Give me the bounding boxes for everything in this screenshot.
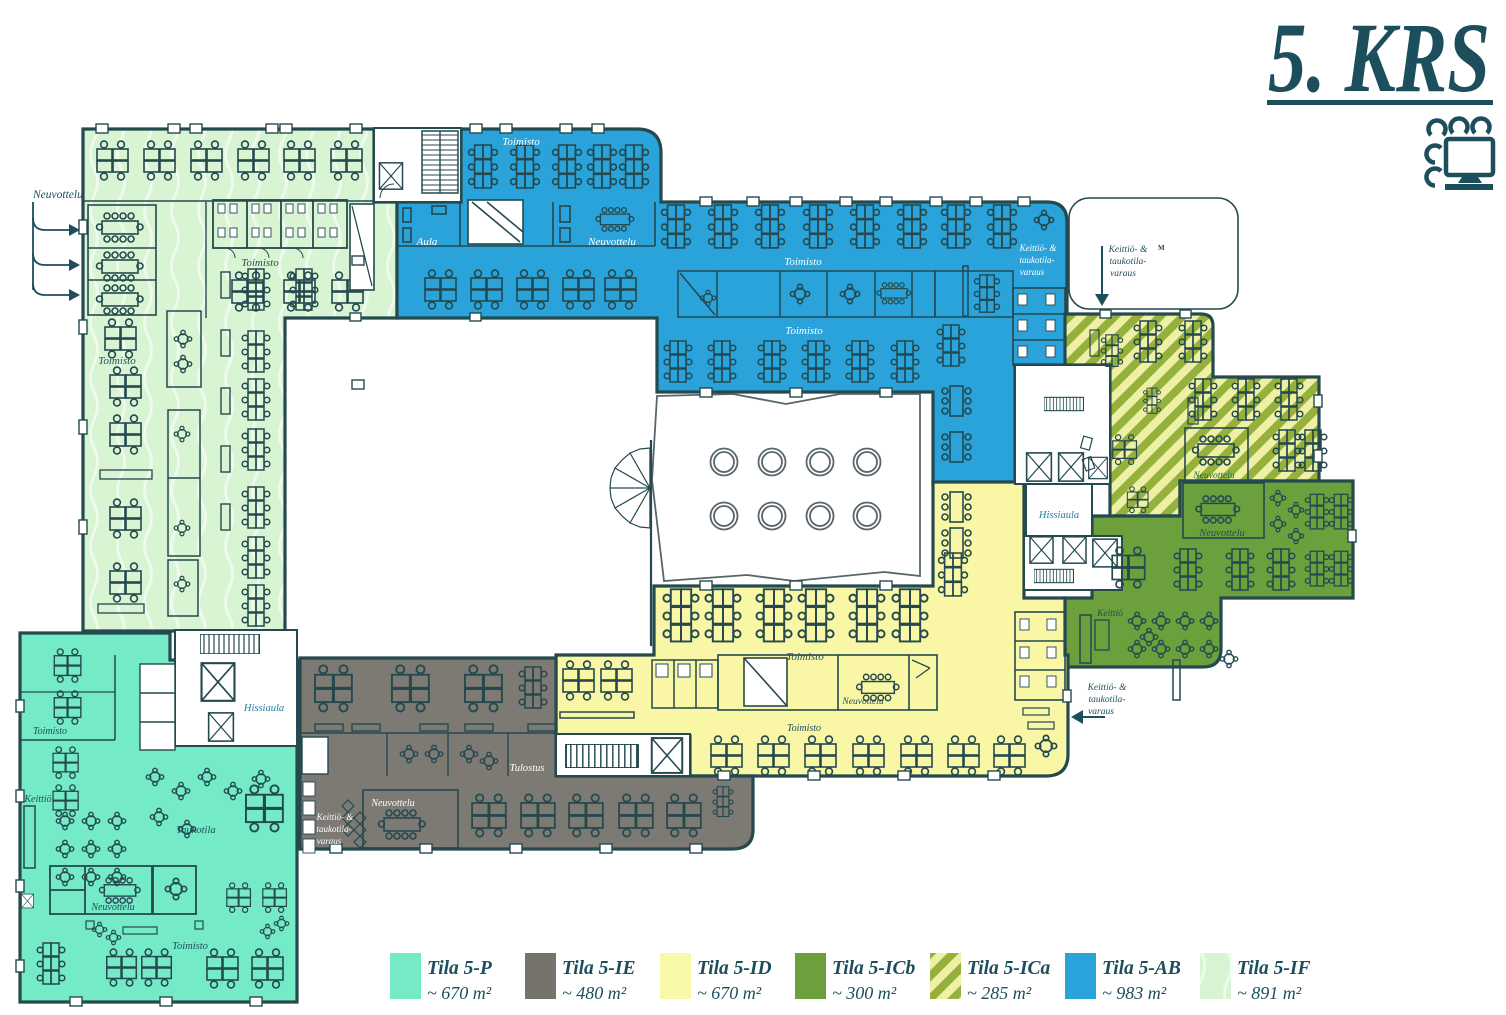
svg-text:~ 300 m²: ~ 300 m² xyxy=(832,983,897,1003)
svg-text:~ 480 m²: ~ 480 m² xyxy=(562,983,627,1003)
svg-text:Neuvottelu: Neuvottelu xyxy=(32,189,83,201)
svg-text:taukotila-: taukotila- xyxy=(1089,695,1126,705)
svg-text:~ 983 m²: ~ 983 m² xyxy=(1102,983,1167,1003)
svg-text:varaus: varaus xyxy=(1110,269,1136,279)
svg-text:Keittiö: Keittiö xyxy=(1096,609,1123,619)
svg-text:5. KRS: 5. KRS xyxy=(1268,2,1490,113)
svg-text:Hissiaula: Hissiaula xyxy=(1038,510,1079,521)
svg-text:taukotila-: taukotila- xyxy=(1020,255,1055,265)
svg-text:M: M xyxy=(1158,244,1165,252)
svg-text:Keittiö- &: Keittiö- & xyxy=(316,812,354,822)
svg-text:varaus: varaus xyxy=(1088,707,1114,717)
svg-text:~ 670 m²: ~ 670 m² xyxy=(427,983,492,1003)
svg-text:taukotila-: taukotila- xyxy=(1110,257,1147,267)
svg-text:Toimisto: Toimisto xyxy=(241,257,279,269)
svg-text:Neuvottelu: Neuvottelu xyxy=(587,236,636,248)
svg-text:Neuvottelu: Neuvottelu xyxy=(841,697,883,707)
svg-text:Tila 5-ICb: Tila 5-ICb xyxy=(832,958,915,979)
svg-text:Taukotila: Taukotila xyxy=(176,825,215,836)
svg-text:Keittiö- &: Keittiö- & xyxy=(1087,683,1127,693)
svg-text:Keittiö- &: Keittiö- & xyxy=(1108,245,1148,255)
svg-text:Toimisto: Toimisto xyxy=(98,355,136,367)
svg-text:Neuvottelu: Neuvottelu xyxy=(1192,471,1234,481)
svg-text:Tila 5-ICa: Tila 5-ICa xyxy=(967,958,1050,979)
svg-text:Neuvottelu: Neuvottelu xyxy=(370,798,414,809)
svg-text:Neuvottelu: Neuvottelu xyxy=(90,902,134,913)
svg-text:Toimisto: Toimisto xyxy=(502,136,540,148)
svg-text:Toimisto: Toimisto xyxy=(786,651,824,663)
svg-text:Toimisto: Toimisto xyxy=(172,941,208,952)
svg-text:varaus: varaus xyxy=(1020,267,1045,277)
svg-text:Keittiö: Keittiö xyxy=(23,794,51,805)
svg-text:Tila 5-IE: Tila 5-IE xyxy=(562,958,636,979)
svg-text:Neuvottelu: Neuvottelu xyxy=(1198,528,1245,539)
svg-text:varaus: varaus xyxy=(317,836,342,846)
svg-text:Tulostus: Tulostus xyxy=(509,763,544,774)
svg-text:Toimisto: Toimisto xyxy=(785,325,823,337)
svg-text:~ 891 m²: ~ 891 m² xyxy=(1237,983,1302,1003)
svg-text:Tila 5-P: Tila 5-P xyxy=(427,958,493,979)
svg-text:Toimisto: Toimisto xyxy=(787,723,821,734)
svg-text:Hissiaula: Hissiaula xyxy=(243,703,284,714)
svg-text:Toimisto: Toimisto xyxy=(784,256,822,268)
svg-text:Keittiö- &: Keittiö- & xyxy=(1019,243,1057,253)
svg-text:Aula: Aula xyxy=(416,236,438,248)
svg-text:~ 285 m²: ~ 285 m² xyxy=(967,983,1032,1003)
svg-text:Tila 5-ID: Tila 5-ID xyxy=(697,958,772,979)
svg-text:Toimisto: Toimisto xyxy=(33,726,67,737)
svg-text:taukotila-: taukotila- xyxy=(317,824,352,834)
svg-text:~ 670 m²: ~ 670 m² xyxy=(697,983,762,1003)
svg-text:Tila 5-IF: Tila 5-IF xyxy=(1237,958,1311,979)
svg-text:Tila 5-AB: Tila 5-AB xyxy=(1102,958,1181,979)
